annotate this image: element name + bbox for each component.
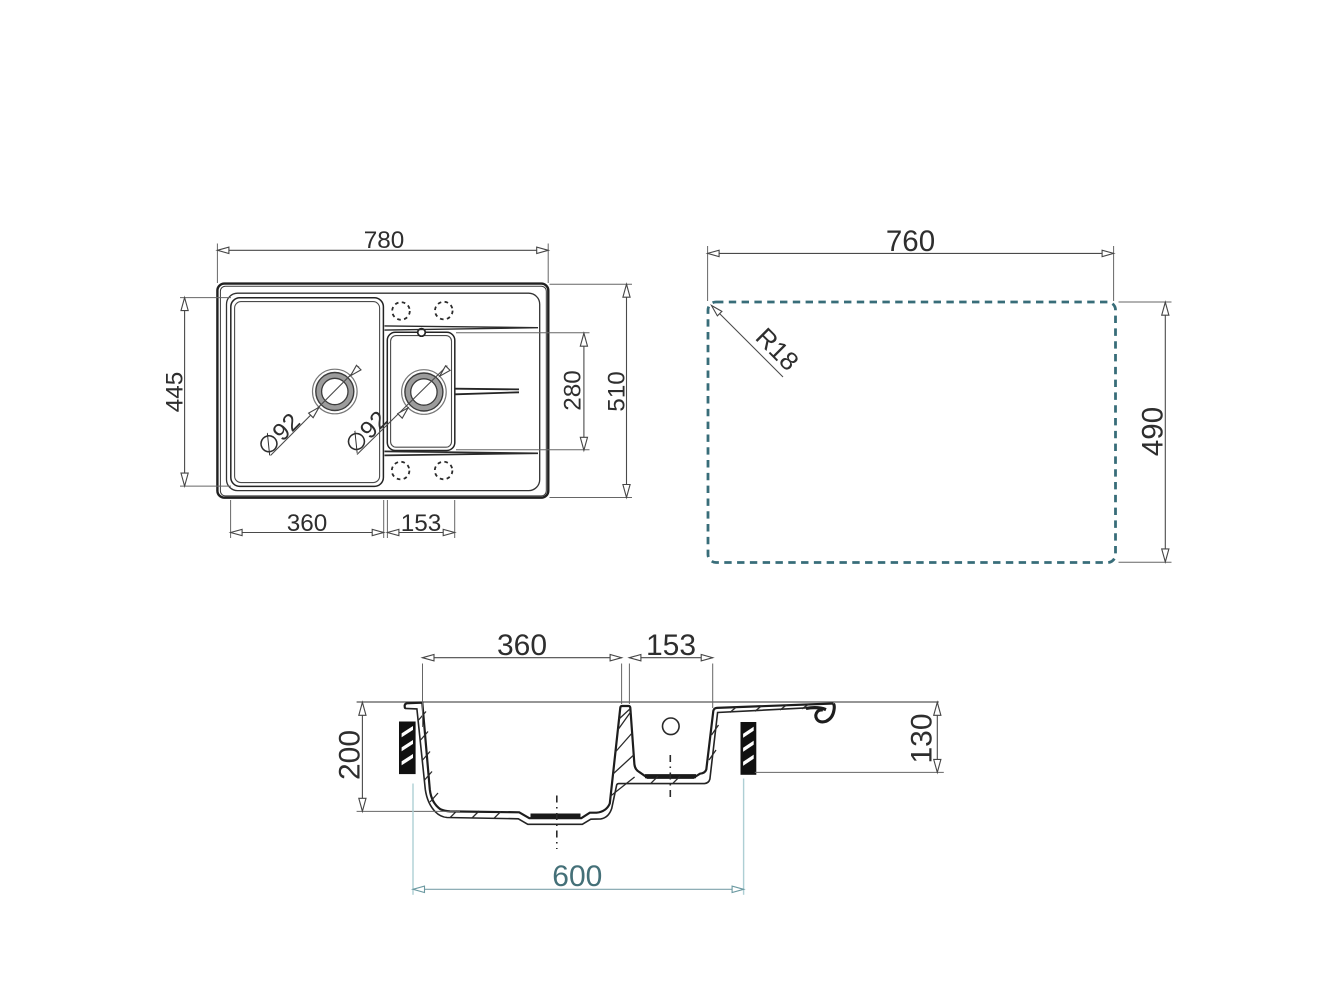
svg-text:360: 360 bbox=[287, 510, 328, 537]
svg-text:200: 200 bbox=[334, 730, 367, 780]
svg-text:760: 760 bbox=[886, 225, 935, 258]
svg-text:510: 510 bbox=[603, 371, 630, 412]
svg-text:153: 153 bbox=[401, 510, 442, 537]
svg-text:280: 280 bbox=[559, 370, 586, 411]
svg-text:490: 490 bbox=[1137, 407, 1170, 456]
svg-text:445: 445 bbox=[161, 372, 188, 413]
svg-text:780: 780 bbox=[364, 227, 405, 254]
svg-text:153: 153 bbox=[646, 629, 696, 662]
svg-text:600: 600 bbox=[552, 860, 602, 893]
svg-text:360: 360 bbox=[497, 629, 547, 662]
svg-text:130: 130 bbox=[906, 713, 939, 763]
